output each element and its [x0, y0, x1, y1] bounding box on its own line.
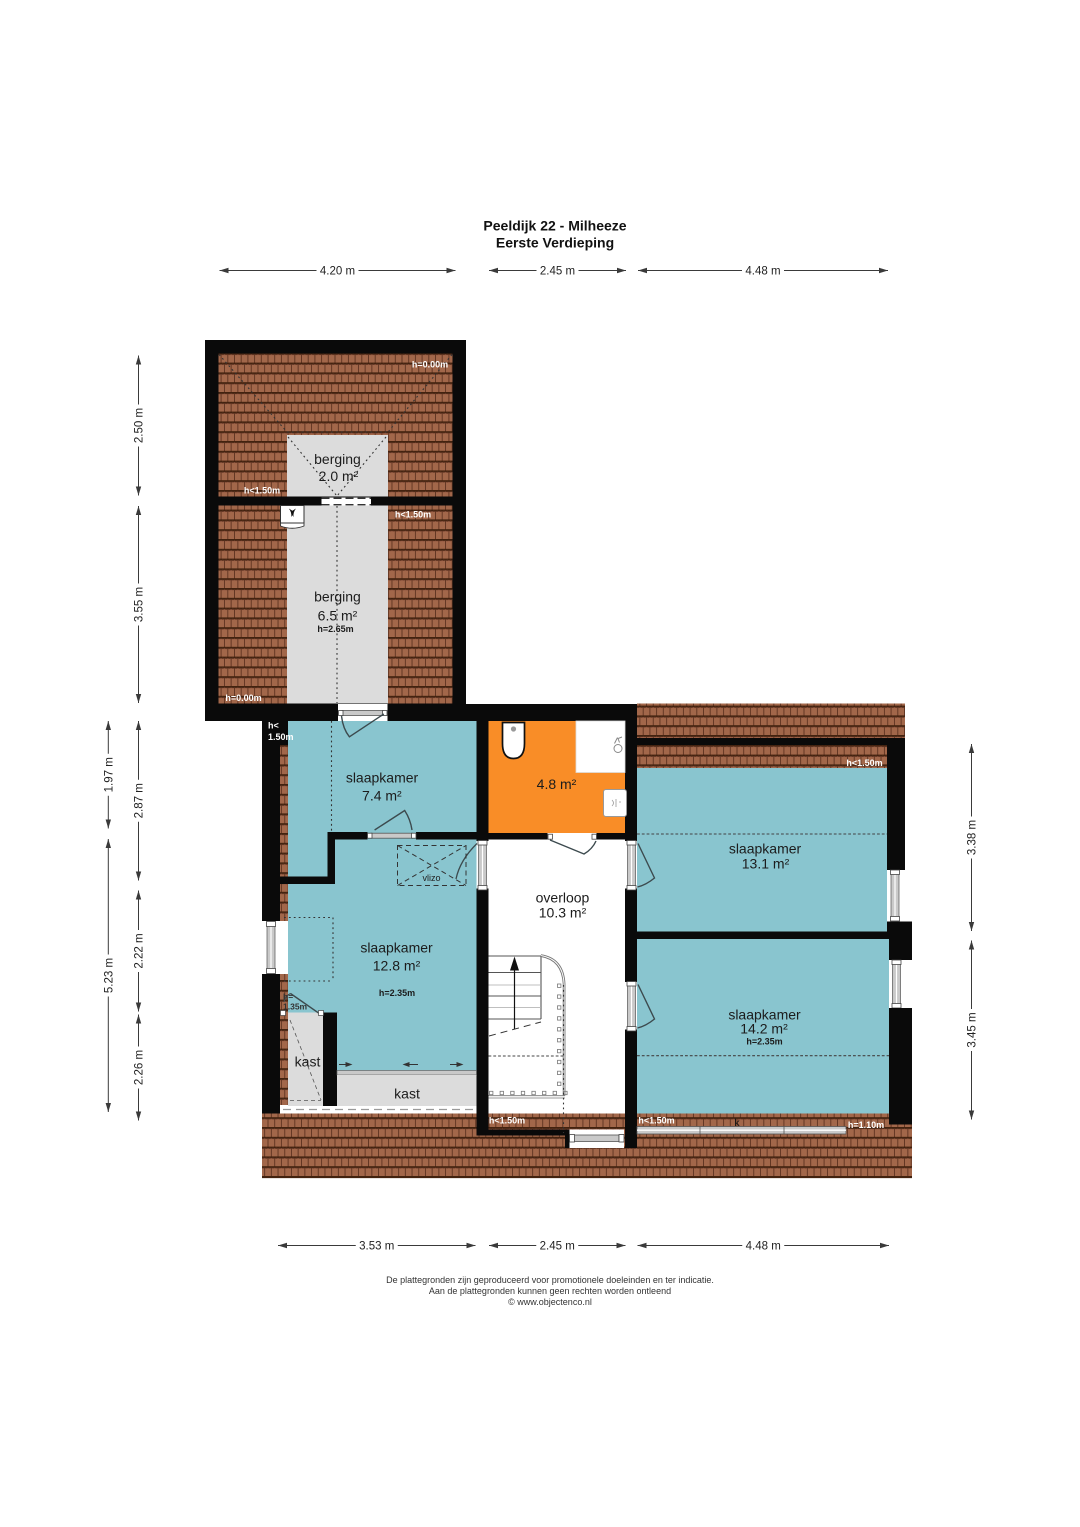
svg-text:7.4 m²: 7.4 m²	[362, 788, 402, 804]
svg-text:h<1.50m: h<1.50m	[244, 486, 280, 496]
svg-text:h=2.65m: h=2.65m	[317, 624, 353, 634]
svg-text:kast: kast	[394, 1086, 420, 1102]
svg-text:2.50 m: 2.50 m	[134, 408, 146, 443]
svg-text:2.87 m: 2.87 m	[134, 783, 146, 818]
svg-text:2.45 m: 2.45 m	[540, 1241, 575, 1253]
svg-text:h<1.50m: h<1.50m	[846, 758, 882, 768]
svg-text:berging: berging	[314, 451, 361, 467]
svg-text:h<1.50m: h<1.50m	[395, 510, 431, 520]
svg-text:2.22 m: 2.22 m	[134, 933, 146, 968]
svg-text:10.3 m²: 10.3 m²	[539, 905, 587, 921]
svg-text:h=2.35m: h=2.35m	[379, 988, 415, 998]
svg-text:14.2 m²: 14.2 m²	[740, 1021, 788, 1037]
svg-text:13.1 m²: 13.1 m²	[742, 856, 790, 872]
svg-text:3.55 m: 3.55 m	[134, 587, 146, 622]
svg-text:4.20 m: 4.20 m	[320, 266, 355, 278]
svg-text:De plattegronden zijn geproduc: De plattegronden zijn geproduceerd voor …	[386, 1275, 714, 1285]
svg-text:vlizo: vlizo	[422, 873, 440, 883]
svg-text:h=0.00m: h=0.00m	[225, 693, 261, 703]
svg-text:h<1.50m: h<1.50m	[489, 1116, 525, 1126]
svg-text:3.53 m: 3.53 m	[359, 1241, 394, 1253]
svg-text:h=2.35m: h=2.35m	[746, 1037, 782, 1047]
svg-text:3.38 m: 3.38 m	[967, 820, 979, 855]
svg-text:1.35m: 1.35m	[283, 1002, 308, 1012]
svg-text:slaapkamer: slaapkamer	[729, 841, 802, 857]
svg-text:4.48 m: 4.48 m	[746, 1241, 781, 1253]
svg-text:slaapkamer: slaapkamer	[360, 940, 433, 956]
svg-text:2.0 m²: 2.0 m²	[319, 468, 359, 484]
svg-text:5.23 m: 5.23 m	[103, 958, 115, 993]
svg-text:Aan de plattegronden kunnen ge: Aan de plattegronden kunnen geen rechten…	[429, 1286, 671, 1296]
svg-text:h<1.50m: h<1.50m	[638, 1116, 674, 1126]
svg-text:slaapkamer: slaapkamer	[346, 770, 419, 786]
svg-text:4.8 m²: 4.8 m²	[537, 776, 577, 792]
svg-text:h=: h=	[283, 992, 293, 1002]
svg-text:h<: h<	[268, 721, 279, 731]
svg-text:Peeldijk 22 - Milheeze: Peeldijk 22 - Milheeze	[483, 218, 626, 234]
svg-text:kast: kast	[295, 1054, 321, 1070]
svg-text:h=1.10m: h=1.10m	[848, 1120, 884, 1130]
svg-text:Eerste Verdieping: Eerste Verdieping	[496, 235, 614, 251]
svg-text:12.8 m²: 12.8 m²	[373, 958, 421, 974]
svg-text:2.45 m: 2.45 m	[540, 266, 575, 278]
svg-text:4.48 m: 4.48 m	[745, 266, 780, 278]
svg-text:3.45 m: 3.45 m	[967, 1012, 979, 1047]
svg-text:k: k	[734, 1117, 740, 1129]
svg-text:2.26 m: 2.26 m	[134, 1050, 146, 1085]
svg-text:© www.objectenco.nl: © www.objectenco.nl	[508, 1297, 592, 1307]
svg-text:1.97 m: 1.97 m	[103, 757, 115, 792]
svg-text:berging: berging	[314, 589, 361, 605]
svg-text:6.5 m²: 6.5 m²	[318, 608, 358, 624]
svg-text:h=0.00m: h=0.00m	[412, 360, 448, 370]
svg-text:overloop: overloop	[536, 890, 590, 906]
svg-text:1.50m: 1.50m	[268, 732, 294, 742]
